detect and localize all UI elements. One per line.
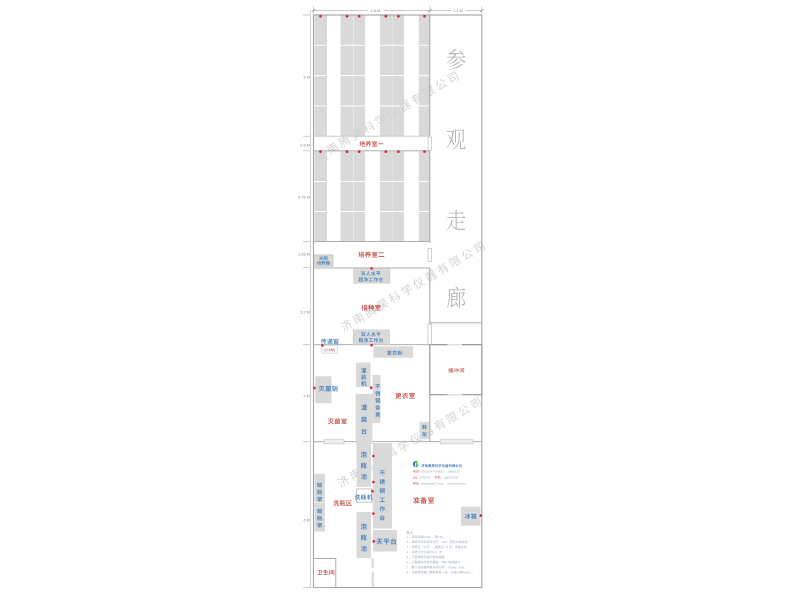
svg-text:3.75 M: 3.75 M <box>298 196 310 200</box>
svg-text:(0531)-87790827: (0531)-87790827 <box>421 469 444 473</box>
svg-text:(0.6M): (0.6M) <box>324 348 335 352</box>
svg-text:4.8 M: 4.8 M <box>371 9 381 13</box>
svg-text:6 M: 6 M <box>303 518 309 522</box>
svg-text:2.1 M: 2.1 M <box>453 9 463 13</box>
svg-text:3.2 M: 3.2 M <box>300 310 310 314</box>
svg-text:13964910762: 13964910762 <box>444 475 459 479</box>
svg-text:5 M: 5 M <box>303 76 309 80</box>
svg-text:0.5m: 0.5m <box>438 535 445 539</box>
svg-text:www.sypet17.com: www.sypet17.com <box>421 482 444 486</box>
svg-text:40cm: 40cm <box>442 540 448 544</box>
svg-text:1.05 M: 1.05 M <box>298 253 310 257</box>
svg-text:1.25m: 1.25m <box>424 535 432 539</box>
svg-text:www.schtdj.com: www.schtdj.com <box>447 482 467 486</box>
svg-text:1.0: 1.0 <box>433 550 438 554</box>
svg-text:QQ:: QQ: <box>413 475 418 479</box>
svg-text:15866011352: 15866011352 <box>448 469 460 473</box>
svg-text:87437467: 87437467 <box>419 475 431 479</box>
svg-text:4 M: 4 M <box>303 394 309 398</box>
svg-text:380v: 380v <box>442 560 449 564</box>
svg-text:0.6 M: 0.6 M <box>300 144 310 148</box>
svg-text:>750kw: >750kw <box>448 565 458 569</box>
